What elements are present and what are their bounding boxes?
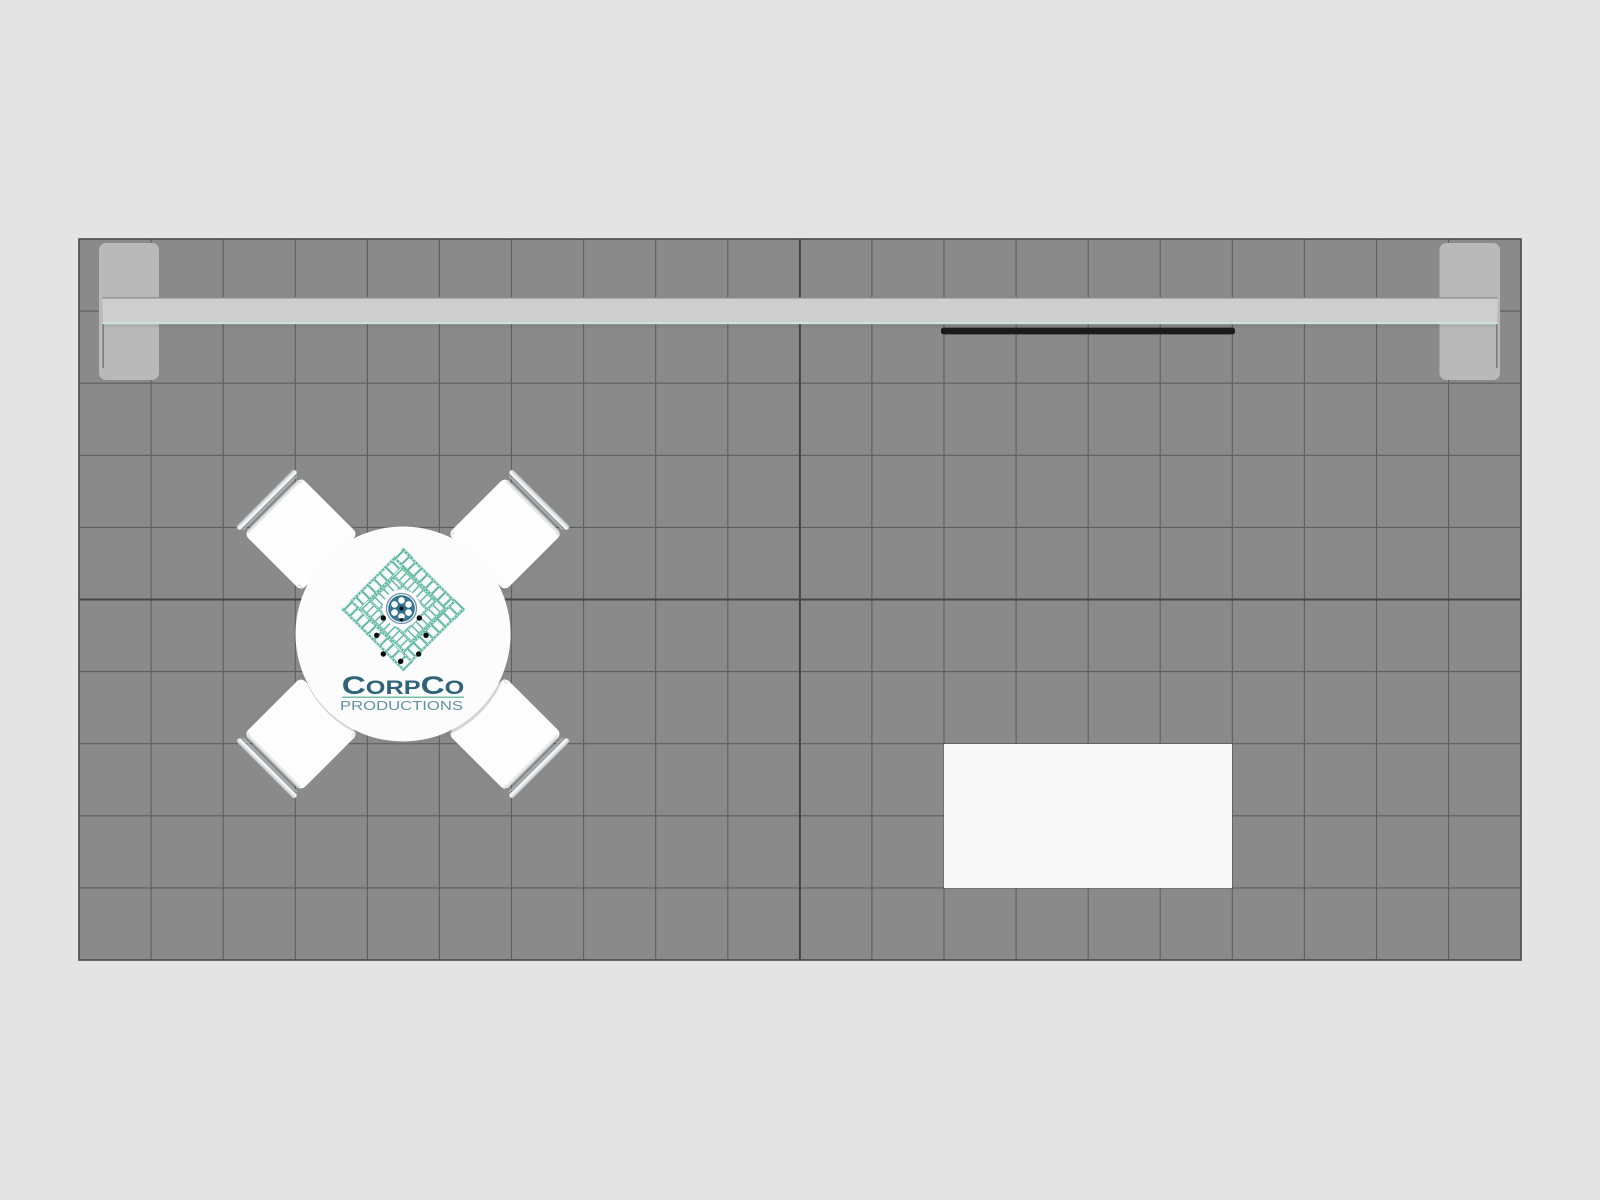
- svg-text:PRODUCTIONS: PRODUCTIONS: [340, 698, 463, 713]
